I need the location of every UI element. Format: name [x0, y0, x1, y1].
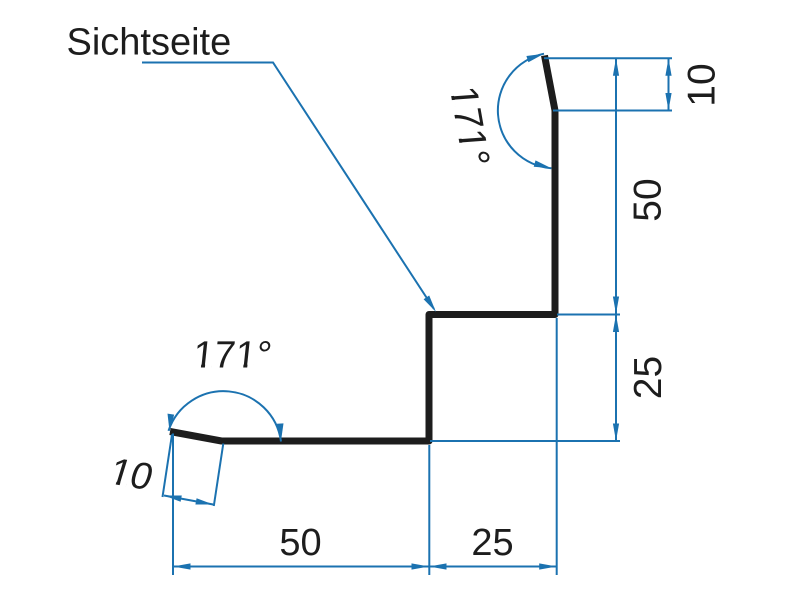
svg-text:50: 50 — [279, 522, 321, 564]
svg-text:10: 10 — [681, 63, 724, 106]
svg-text:171°: 171° — [191, 335, 274, 377]
svg-text:25: 25 — [471, 522, 513, 564]
svg-text:Sichtseite: Sichtseite — [67, 22, 232, 64]
svg-text:50: 50 — [627, 178, 670, 221]
svg-text:25: 25 — [627, 356, 670, 399]
